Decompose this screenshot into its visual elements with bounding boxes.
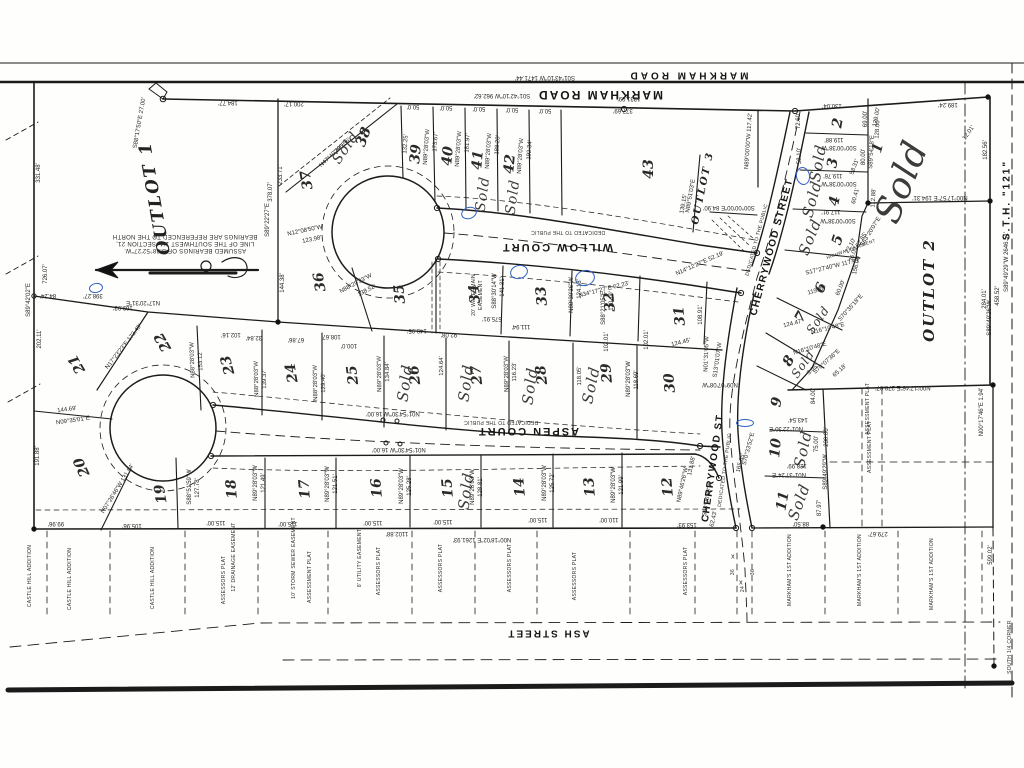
- dimension-label: S00°00'38"W: [820, 217, 855, 223]
- dimension-label: S88°51'59"W: [187, 469, 193, 504]
- dimension-label: 111.94': [512, 323, 531, 329]
- blue-pen-mark: [508, 263, 529, 281]
- dimension-label: 119.88': [824, 136, 843, 142]
- dimension-label: 124.47': [783, 319, 803, 330]
- dimension-label: 65.18': [832, 363, 848, 378]
- dimension-label: 112.88': [871, 188, 878, 207]
- dimension-label: S89°22'27"E: [265, 203, 271, 237]
- sold-mark: Sold: [518, 366, 541, 406]
- dimension-label: N17°23'23"E 173.49': [105, 323, 144, 370]
- dimension-label: S88°30'14"W: [492, 273, 498, 308]
- note-label: 20' WATERMAIN: [471, 274, 477, 316]
- dimension-label: S00°00'38"W: [821, 180, 856, 186]
- dimension-label: N01°54'30"W 16.00': [372, 446, 426, 452]
- dimension-label: 110.00': [599, 516, 618, 522]
- note-label: ASSUMED BEARINGS OF S.88°52'27"W.: [124, 247, 246, 253]
- lot-number-13: 13: [581, 477, 599, 498]
- dimension-label: 173.67': [432, 132, 439, 152]
- dimension-label: 50.0': [407, 103, 420, 109]
- dimension-label: 32.84': [246, 334, 262, 340]
- lot-number-20: 20: [71, 455, 94, 479]
- dimension-label: 127.78': [195, 478, 201, 498]
- dimension-label: N88°28'03"W: [189, 342, 196, 378]
- lot-number-9: 9: [768, 396, 785, 408]
- dimension-label: N88°28'03"W: [313, 365, 320, 401]
- dimension-label: 102.01': [644, 330, 650, 350]
- street-label: WILLOW COURT: [501, 241, 613, 253]
- lot-number-43: 43: [641, 159, 657, 178]
- dimension-label: 75.00': [814, 436, 820, 452]
- lot-number-25: 25: [344, 364, 362, 385]
- dimension-label: N07°26'46"W 131.84': [100, 463, 135, 514]
- dimension-label: 1102.88': [386, 530, 408, 536]
- dimension-label: 84.00': [811, 388, 817, 404]
- dimension-label: 139.37': [262, 369, 268, 389]
- plat-map: MARKHAM ROADMARKHAM ROADWILLOW COURTASPE…: [0, 0, 1024, 768]
- dimension-label: 115.00': [433, 518, 452, 524]
- lot-number-31: 31: [671, 306, 689, 327]
- dimension-label: 233.71': [278, 165, 284, 185]
- dimension-label: 105.96': [122, 522, 142, 528]
- dimension-label: 184.77': [218, 99, 238, 105]
- lot-number-18: 18: [223, 479, 241, 500]
- dimension-label: 99.96': [48, 520, 64, 526]
- dimension-label: 115.00': [363, 519, 382, 525]
- dimension-label: 230.00': [824, 427, 830, 447]
- dimension-label: 84.24': [40, 292, 56, 298]
- street-label: ASH STREET: [506, 628, 589, 639]
- street-label: MARKHAM ROAD: [537, 88, 663, 102]
- dimension-label: 125.28': [407, 476, 413, 496]
- dimension-label: 140.95': [407, 327, 427, 333]
- note-label: 36: [730, 569, 736, 575]
- dimension-label: N89°28'03"W: [470, 469, 476, 505]
- lot-number-12: 12: [659, 477, 677, 498]
- dimension-label: S13°01'07"W: [713, 342, 724, 378]
- lot-number-22: 22: [151, 330, 175, 355]
- blue-pen-mark: [736, 419, 754, 427]
- dimension-label: N89°28'03"W: [542, 465, 548, 501]
- dimension-label: 120.10': [609, 291, 615, 311]
- dimension-label: N89°28'03"W: [377, 356, 384, 392]
- dimension-label: N89°28'03"W: [504, 356, 511, 392]
- dimension-label: N89°28'03"W: [485, 133, 493, 169]
- dimension-label: N88°30'36"W: [569, 277, 575, 313]
- note-label: ASSESSMENT PLAT: [307, 551, 313, 603]
- dimension-label: 202.11': [37, 329, 43, 348]
- dimension-label: N01°22'30"E: [769, 425, 803, 431]
- dimension-label: N00°17'46"E 1.94': [979, 388, 985, 437]
- lot-number-37: 37: [297, 169, 316, 191]
- note-label: 10' STORM SEWER EASEMENT: [291, 517, 297, 599]
- dimension-label: 67.86': [288, 336, 304, 342]
- dimension-label: 153.12': [198, 351, 205, 371]
- dimension-label: 279.67': [868, 530, 888, 536]
- dimension-label: 188.20': [494, 135, 501, 155]
- dimension-label: 12.01': [962, 125, 976, 142]
- dimension-label: 50.0': [506, 106, 519, 112]
- street-label: MARKHAM ROAD: [628, 70, 749, 81]
- dimension-label: 182.56': [983, 140, 989, 160]
- dimension-label: N09°07'08"W: [702, 381, 738, 387]
- lot-number-24: 24: [282, 362, 301, 384]
- lot-number-2: 2: [829, 117, 846, 129]
- dimension-label: 115.00': [528, 516, 547, 522]
- note-label: SOUTH 1/4 CORNER: [1007, 620, 1013, 674]
- dimension-label: S01°42'10"W 962.62': [474, 92, 531, 98]
- dimension-label: 60.00': [835, 279, 847, 296]
- note-label: ASSESSORS PLAT: [376, 547, 382, 596]
- note-label: CASTLE HILL ADDITION: [67, 548, 73, 610]
- dimension-label: 108.67': [321, 333, 341, 339]
- dimension-label: S88°21'05"E: [601, 291, 607, 325]
- dimension-label: 143.54': [788, 416, 808, 422]
- dimension-label: N01°31'05"W: [703, 336, 710, 372]
- lot-number-35: 35: [391, 284, 409, 305]
- dimension-label: 118.69': [634, 370, 640, 389]
- dimension-label: 128.99': [787, 462, 807, 468]
- dimension-label: 121.51': [333, 474, 339, 494]
- dimension-label: 141.31': [500, 277, 506, 297]
- dimension-label: N14°12'27"E 52.19': [675, 251, 725, 278]
- outlot-label: OUTLOT 1: [135, 139, 175, 256]
- note-label: BEARINGS ARE REFERENCED TO THE NORTH: [113, 233, 258, 239]
- dimension-label: 115.00': [206, 519, 225, 525]
- dimension-label: S89°49'29"W: [823, 454, 829, 489]
- dimension-label: 50.0': [473, 105, 486, 111]
- dimension-label: 124.64': [439, 356, 445, 376]
- lot-number-17: 17: [296, 479, 314, 500]
- lot-number-14: 14: [511, 477, 529, 498]
- lot-number-21: 21: [65, 352, 89, 377]
- lot-number-15: 15: [439, 478, 457, 499]
- dimension-label: 50.0': [539, 107, 552, 113]
- lot-number-36: 36: [310, 271, 329, 293]
- dimension-label: 200.17': [284, 100, 304, 106]
- dimension-label: 169.03': [113, 304, 133, 310]
- sold-mark: Sold: [454, 363, 477, 403]
- dimension-label: 125.72': [550, 473, 556, 493]
- dimension-label: 130.04': [822, 102, 842, 108]
- note-label: DEDICATED TO THE PUBLIC: [531, 229, 605, 235]
- dimension-label: 284.01': [982, 289, 988, 309]
- dimension-label: 189.24': [938, 101, 958, 107]
- dimension-label: 128.81': [478, 477, 484, 497]
- outlot-label: OUTLOT 2: [920, 238, 938, 342]
- dimension-label: 102.16': [221, 331, 241, 337]
- dimension-label: 124.45': [671, 338, 691, 349]
- lot-number-33: 33: [533, 286, 551, 307]
- dimension-label: 128.00': [874, 119, 881, 139]
- dimension-label: N89°28'03"W: [423, 129, 431, 165]
- note-label: 12' DRAINAGE EASEMENT: [231, 522, 237, 591]
- dimension-label: 119.76': [823, 172, 842, 178]
- dimension-label: S89°49'29"W 2646.51': [1004, 232, 1010, 292]
- lot-number-30: 30: [661, 373, 679, 394]
- note-label: MARKHAM'S 1ST ADDITION: [857, 534, 863, 606]
- dimension-label: 138.52': [357, 284, 377, 298]
- street-label: S.T.H. "121": [1002, 160, 1013, 240]
- dimension-label: 108.91': [698, 305, 704, 325]
- lot-number-4: 4: [826, 195, 844, 208]
- dimension-label: 144.38': [280, 273, 286, 293]
- dimension-label: N00°17'57"E 194.31': [912, 194, 967, 200]
- dimension-label: 599.02': [988, 545, 994, 565]
- street-label: ASPEN COURT: [477, 425, 579, 437]
- note-label: x: [731, 554, 735, 561]
- dimension-label: 69.00': [863, 111, 869, 127]
- dimension-label: 1331.09': [618, 95, 641, 101]
- sold-mark: Sold: [473, 175, 494, 212]
- note-label: ASSESSMENT PLAT: [867, 421, 873, 473]
- note-label: DEDICATED TO THE PUBLIC: [464, 419, 538, 425]
- dimension-label: 123.98': [302, 235, 322, 245]
- dimension-label: N89°28'03"W: [626, 361, 632, 397]
- dimension-label: 191.88': [35, 446, 41, 466]
- dimension-label: S00°00'00"E 84.90': [703, 204, 755, 210]
- note-label: x: [739, 580, 743, 587]
- dimension-label: 121.99': [619, 475, 625, 495]
- dimension-label: N89°28'03"W: [399, 468, 405, 504]
- dimension-label: N00°18'02"E 1261.93': [453, 536, 512, 542]
- dimension-label: N09°35'01"E: [56, 416, 91, 427]
- dimension-label: N89°00'00"W 117.42': [744, 113, 754, 170]
- dimension-label: N00°17'46"E 278.07': [875, 384, 930, 390]
- dimension-label: 117.91': [821, 208, 840, 214]
- dimension-label: 153.93': [677, 521, 697, 527]
- note-label: ASSESSORS PLAT: [683, 547, 689, 596]
- dimension-label: S01°43'10"W 1471.44': [515, 74, 575, 80]
- dimension-label: 458.52': [995, 286, 1001, 306]
- dimension-label: 58.10': [797, 148, 803, 164]
- dimension-label: N89°28'03"W: [253, 465, 259, 501]
- dimension-label: 100.0': [341, 342, 357, 348]
- dimension-label: 60.41': [851, 187, 861, 204]
- plat-labels: MARKHAM ROADMARKHAM ROADWILLOW COURTASPE…: [0, 0, 1024, 768]
- lot-number-16: 16: [368, 478, 386, 499]
- dimension-label: 121.49': [261, 473, 267, 493]
- dimension-label: 726.07': [43, 264, 49, 284]
- note-label: EASEMENT: [478, 280, 484, 310]
- dimension-label: 58.31': [849, 158, 860, 175]
- dimension-label: 144.69': [57, 406, 77, 415]
- lot-number-5: 5: [829, 233, 847, 247]
- note-label: 8' UTILITY EASEMENT: [357, 529, 363, 587]
- dimension-label: S89°54'18"E: [868, 135, 876, 169]
- dimension-label: 331.48': [36, 163, 42, 183]
- dimension-label: 134.84': [385, 362, 391, 382]
- lot-number-19: 19: [151, 483, 170, 505]
- note-label: LINE OF THE SOUTHWEST 1/4, SECTION 21,: [116, 240, 254, 246]
- sold-mark: Sold: [503, 178, 524, 215]
- dimension-label: 88.50': [793, 520, 809, 526]
- note-label: CASTLE HILL ADDITION: [150, 547, 156, 609]
- dimension-label: 92.08': [441, 331, 457, 337]
- dimension-label: N89°28'03"W: [611, 467, 617, 503]
- dimension-label: 118.05': [577, 366, 583, 385]
- dimension-label: S00°00'38"W: [821, 144, 856, 150]
- note-label: ASSESSORS PLAT: [507, 544, 513, 593]
- dimension-label: N89°28'03"W: [517, 138, 525, 174]
- note-label: MARKHAM'S 1ST ADDITION: [929, 538, 935, 610]
- dimension-label: 80.00': [861, 149, 867, 165]
- dimension-label: N88°28'03"W: [254, 361, 261, 397]
- dimension-label: S70°35'18"E: [837, 293, 864, 322]
- note-label: ASSESSORS PLAT: [572, 552, 578, 601]
- dimension-label: 72.60': [796, 113, 802, 129]
- dimension-label: 87.97': [817, 500, 823, 516]
- dimension-label: 116.23': [512, 362, 518, 381]
- lot-number-23: 23: [218, 354, 238, 377]
- dimension-label: 50.0': [440, 104, 453, 110]
- sold-mark: Sold: [784, 481, 814, 523]
- lot-number-10: 10: [767, 438, 785, 459]
- dimension-label: N89°28'03"W: [325, 466, 331, 502]
- dimension-label: N89°46'26"W: [676, 467, 689, 503]
- dimension-label: 102.01': [604, 332, 610, 352]
- dimension-label: N01°37'24"E: [772, 471, 806, 477]
- sold-mark: Sold: [393, 363, 416, 403]
- note-label: ASSESSORS PLAT: [438, 544, 444, 593]
- dimension-label: 377.69': [613, 107, 633, 113]
- dimension-label: 129.40': [321, 373, 327, 393]
- dimension-label: 378.07': [268, 182, 274, 202]
- dimension-label: N89°28'03"W: [455, 131, 463, 167]
- dimension-label: N01°54'30"W 16.00': [366, 410, 420, 416]
- note-label: MARKHAM'S 1ST ADDITION: [787, 534, 793, 606]
- note-label: 36: [750, 569, 756, 575]
- dimension-label: 575.91': [482, 315, 502, 321]
- note-label: ASSESSORS PLAT: [221, 556, 227, 605]
- dimension-label: S89°42'02"E: [26, 283, 32, 317]
- dimension-label: 192.34': [526, 140, 533, 160]
- note-label: 24: [740, 586, 746, 592]
- note-label: CASTLE HILL ADDITION: [27, 545, 33, 607]
